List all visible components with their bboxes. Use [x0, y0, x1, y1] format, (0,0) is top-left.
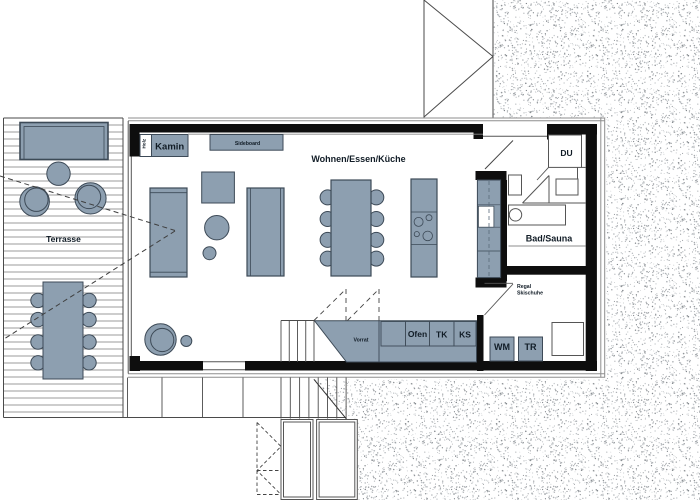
- svg-text:DU: DU: [560, 148, 572, 158]
- svg-text:Bad/Sauna: Bad/Sauna: [526, 234, 574, 244]
- svg-text:Regal: Regal: [517, 284, 532, 290]
- svg-text:Wohnen/Essen/Küche: Wohnen/Essen/Küche: [311, 154, 405, 164]
- svg-text:Ofen: Ofen: [408, 329, 427, 339]
- svg-text:WM: WM: [494, 342, 510, 352]
- svg-text:TR: TR: [525, 342, 537, 352]
- svg-text:Kamin: Kamin: [155, 142, 184, 153]
- svg-text:TK: TK: [436, 330, 448, 340]
- svg-text:Holz: Holz: [142, 138, 147, 148]
- svg-text:Terrasse: Terrasse: [46, 234, 81, 244]
- svg-text:KS: KS: [459, 330, 471, 340]
- svg-text:Sideboard: Sideboard: [235, 141, 260, 147]
- svg-text:Skischuhe: Skischuhe: [517, 291, 543, 297]
- svg-text:Vorrat: Vorrat: [354, 338, 369, 344]
